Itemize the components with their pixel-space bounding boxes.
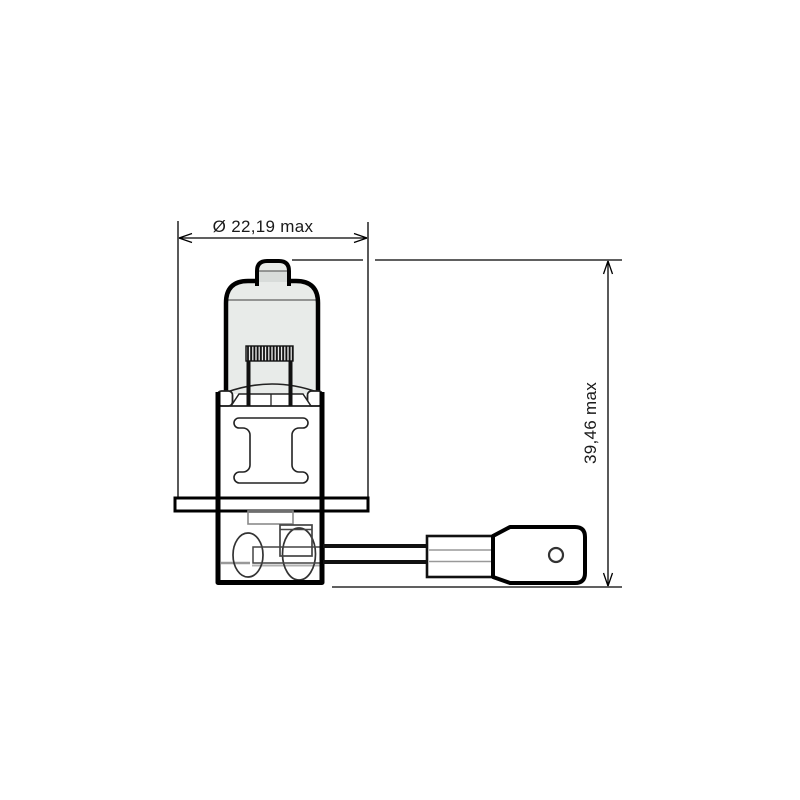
crimp-sleeve-body [427, 536, 493, 577]
nipple-shade-band [259, 271, 287, 282]
dimension-width-label: Ø 22,19 max [213, 217, 314, 236]
technical-drawing-page: Ø 22,19 max 39,46 max [0, 0, 800, 800]
glass-body-fill [226, 281, 318, 396]
bulb-nipple [257, 261, 289, 286]
filament-coil [246, 346, 293, 361]
drawing-background [0, 0, 800, 800]
dimension-height-label: 39,46 max [581, 382, 600, 464]
spade-terminal [493, 527, 585, 583]
crimp-sleeve [427, 536, 493, 577]
bulb-glass [226, 281, 318, 396]
bulb-technical-drawing: Ø 22,19 max 39,46 max [0, 0, 800, 800]
spade-terminal-body [493, 527, 585, 583]
terminal-hole [549, 548, 563, 562]
mounting-flange [175, 498, 368, 511]
